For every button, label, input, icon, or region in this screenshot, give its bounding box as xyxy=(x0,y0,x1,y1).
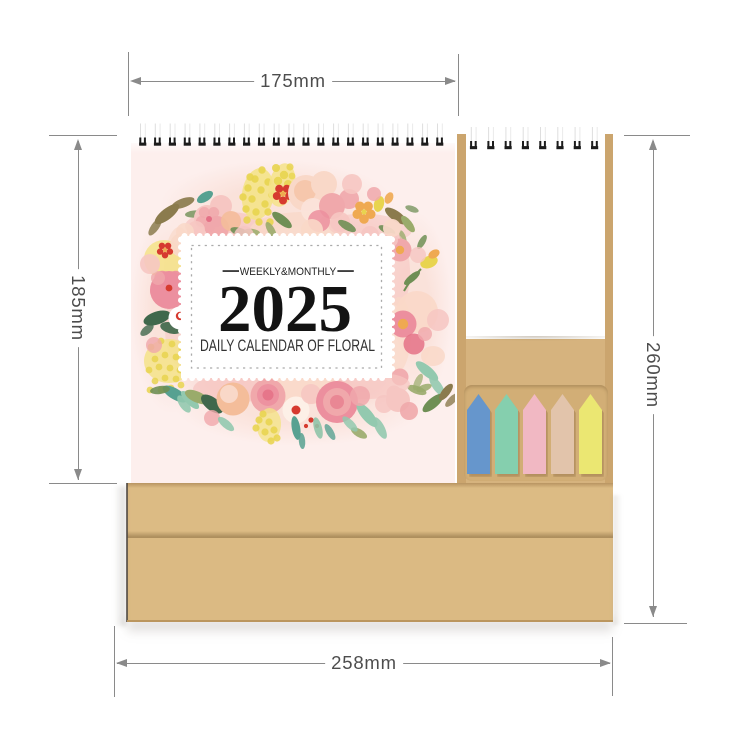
svg-text:2025: 2025 xyxy=(218,272,352,346)
svg-text:DAILY CALENDAR OF FLORAL: DAILY CALENDAR OF FLORAL xyxy=(200,336,375,355)
